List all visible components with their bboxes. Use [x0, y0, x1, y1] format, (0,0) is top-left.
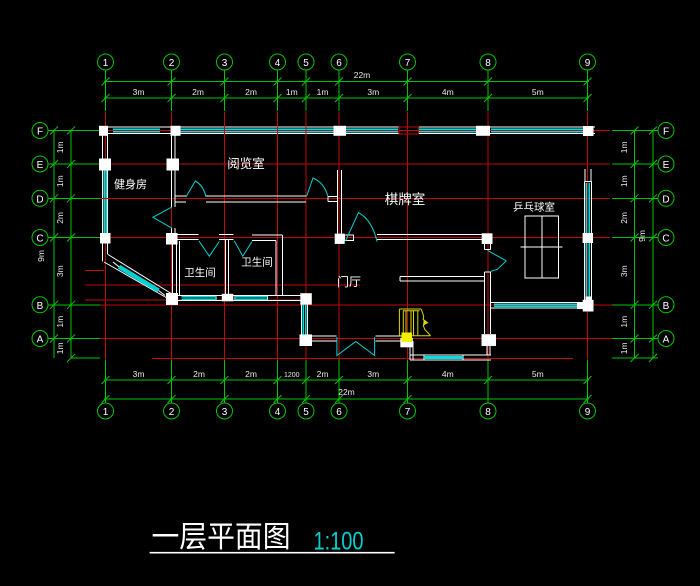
- svg-text:一层平面图: 一层平面图: [152, 521, 291, 554]
- svg-text:8: 8: [485, 407, 491, 418]
- svg-text:9: 9: [585, 407, 591, 418]
- svg-text:E: E: [37, 160, 44, 171]
- svg-text:健身房: 健身房: [114, 177, 147, 191]
- svg-text:6: 6: [336, 58, 342, 69]
- svg-text:1200: 1200: [284, 372, 300, 379]
- svg-text:C: C: [36, 234, 43, 245]
- svg-text:E: E: [663, 160, 670, 171]
- svg-text:9: 9: [585, 58, 591, 69]
- svg-text:乒乓球室: 乒乓球室: [513, 201, 555, 214]
- svg-text:2m: 2m: [245, 87, 257, 97]
- svg-text:卫生间: 卫生间: [184, 266, 216, 279]
- svg-text:3m: 3m: [55, 265, 65, 277]
- svg-text:2m: 2m: [619, 212, 629, 224]
- svg-text:1m: 1m: [619, 175, 629, 187]
- svg-text:1m: 1m: [55, 316, 65, 328]
- svg-text:阅览室: 阅览室: [227, 156, 265, 171]
- svg-text:3: 3: [222, 58, 228, 69]
- svg-text:3m: 3m: [367, 87, 379, 97]
- svg-text:6: 6: [336, 407, 342, 418]
- svg-text:1: 1: [103, 58, 109, 69]
- svg-text:1m: 1m: [55, 342, 65, 354]
- svg-text:4m: 4m: [442, 87, 454, 97]
- svg-text:棋牌室: 棋牌室: [385, 191, 426, 207]
- svg-text:1m: 1m: [619, 316, 629, 328]
- svg-text:5: 5: [303, 407, 309, 418]
- svg-text:5m: 5m: [532, 87, 544, 97]
- svg-text:1: 1: [103, 407, 109, 418]
- svg-text:3m: 3m: [133, 369, 145, 379]
- svg-text:22m: 22m: [354, 70, 371, 80]
- svg-text:4: 4: [275, 58, 281, 69]
- svg-text:5m: 5m: [532, 369, 544, 379]
- svg-text:1m: 1m: [619, 342, 629, 354]
- svg-text:4: 4: [275, 407, 281, 418]
- svg-text:3: 3: [222, 407, 228, 418]
- svg-text:3m: 3m: [367, 369, 379, 379]
- svg-text:B: B: [37, 301, 44, 312]
- svg-text:1m: 1m: [55, 175, 65, 187]
- svg-text:2: 2: [169, 407, 175, 418]
- svg-text:2m: 2m: [317, 369, 329, 379]
- svg-text:9m: 9m: [637, 230, 647, 242]
- svg-text:D: D: [36, 194, 43, 205]
- svg-text:7: 7: [405, 407, 411, 418]
- svg-text:1m: 1m: [317, 87, 329, 97]
- svg-text:8: 8: [485, 58, 491, 69]
- svg-text:4m: 4m: [442, 369, 454, 379]
- svg-text:9m: 9m: [36, 250, 46, 262]
- svg-text:门厅: 门厅: [337, 274, 361, 289]
- svg-text:C: C: [662, 234, 669, 245]
- svg-text:D: D: [662, 194, 669, 205]
- svg-text:3m: 3m: [133, 87, 145, 97]
- svg-text:2m: 2m: [193, 369, 205, 379]
- svg-text:1m: 1m: [619, 141, 629, 153]
- svg-text:5: 5: [303, 58, 309, 69]
- svg-text:3m: 3m: [619, 265, 629, 277]
- svg-text:1:100: 1:100: [314, 528, 364, 556]
- svg-text:F: F: [663, 127, 669, 138]
- svg-text:1m: 1m: [55, 141, 65, 153]
- svg-text:2m: 2m: [55, 212, 65, 224]
- svg-text:2m: 2m: [245, 369, 257, 379]
- svg-text:A: A: [663, 335, 670, 346]
- svg-text:B: B: [663, 301, 670, 312]
- svg-text:2m: 2m: [192, 87, 204, 97]
- svg-text:卫生间: 卫生间: [241, 256, 273, 269]
- svg-text:F: F: [37, 127, 43, 138]
- svg-text:7: 7: [405, 58, 411, 69]
- svg-text:2: 2: [169, 58, 175, 69]
- svg-text:A: A: [37, 335, 44, 346]
- svg-text:1m: 1m: [286, 87, 298, 97]
- svg-text:22m: 22m: [338, 387, 355, 397]
